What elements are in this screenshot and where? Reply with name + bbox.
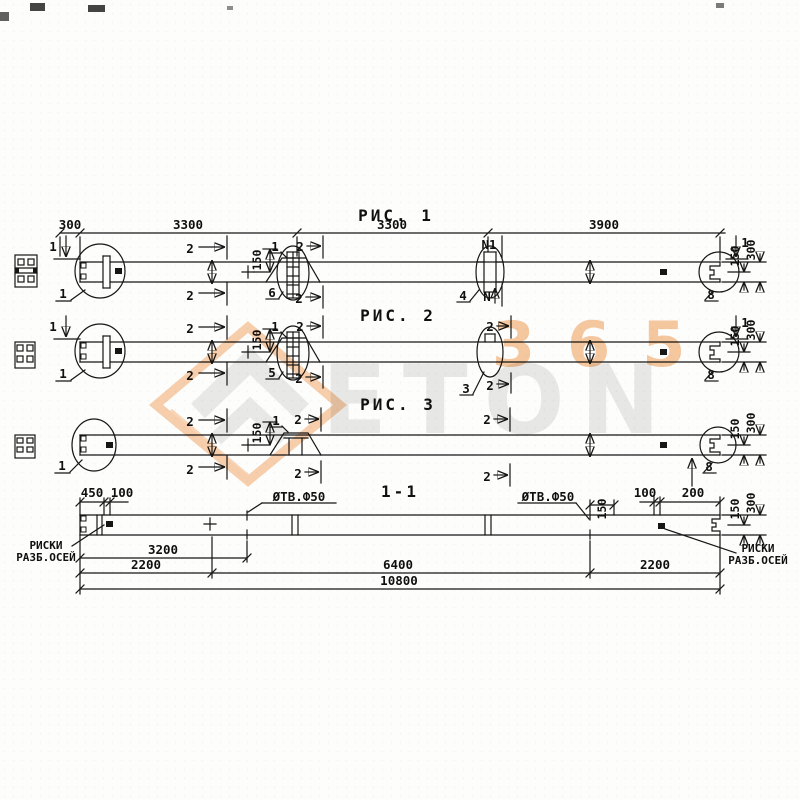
console-pos-label: 1 bbox=[271, 319, 279, 334]
console-pos-label: 1 bbox=[272, 413, 280, 428]
section-top-left-dims: 450 100 bbox=[76, 485, 133, 515]
section-icon-3 bbox=[15, 435, 35, 458]
dim-2200-right: 2200 bbox=[640, 557, 670, 572]
beam-end-notch bbox=[710, 262, 720, 282]
section-right-dims: 150 300 bbox=[722, 493, 766, 543]
fig1-right-end-detail: 8 150 300 bbox=[699, 240, 766, 302]
section2-mark-label: 2 bbox=[186, 368, 194, 383]
sectionN1-mark-label: N1 bbox=[481, 237, 496, 252]
fig1-dim-150: 150 1 bbox=[242, 239, 287, 278]
hole-label: ØТВ.Ф50 bbox=[272, 489, 326, 504]
dim-150: 150 bbox=[250, 330, 264, 351]
section2-mark-label: 2 bbox=[486, 378, 494, 393]
dim-150: 150 bbox=[250, 423, 264, 444]
dim-3200: 3200 bbox=[148, 542, 178, 557]
section-top-right-dims: 100 200 bbox=[634, 485, 724, 515]
section2-mark-label: 2 bbox=[483, 412, 491, 427]
section-bottom-dims: 3200 2200 6400 2200 10800 bbox=[76, 535, 724, 594]
fig2-dim-150: 150 1 bbox=[242, 319, 287, 358]
section2-mark-label: 2 bbox=[186, 321, 194, 336]
dim-150-right: 150 bbox=[728, 246, 742, 267]
dim-300-right: 300 bbox=[744, 320, 758, 341]
dim-3300-b: 3300 bbox=[377, 217, 407, 232]
fig3-section2-marks: 2 2 2 2 2 2 bbox=[186, 408, 510, 486]
section2-mark-label: 2 bbox=[483, 469, 491, 484]
section2-mark-label: 2 bbox=[186, 288, 194, 303]
detail-8-label: 8 bbox=[707, 367, 715, 382]
fig1-beam bbox=[80, 256, 720, 288]
dim-150-right: 150 bbox=[728, 419, 742, 440]
fig3-dim-150: 150 1 bbox=[242, 413, 288, 451]
dim-200: 200 bbox=[682, 485, 705, 500]
fig3-beam bbox=[80, 434, 720, 486]
detail-6-label: 6 bbox=[268, 285, 276, 300]
section2-mark-label: 2 bbox=[294, 412, 302, 427]
fig1-top-dimensions: 300 3300 3300 3900 bbox=[56, 217, 725, 260]
risk-label-right-2: РАЗБ.ОСЕЙ bbox=[728, 554, 788, 567]
dim-3300-a: 3300 bbox=[173, 217, 203, 232]
section2-mark-label: 2 bbox=[186, 462, 194, 477]
beam-end-notch bbox=[710, 342, 720, 362]
detail-8-label: 8 bbox=[707, 287, 715, 302]
section-1-1: 1-1 450 100 ØТВ.Ф50 ØТВ.Ф bbox=[16, 482, 788, 594]
scanned-drawing-page: РИС. 1 300 3300 3300 3900 1 1 2 2 bbox=[0, 0, 800, 800]
fig2-title: РИС. 2 bbox=[360, 306, 436, 325]
fig2-right-end-detail: 8 150 300 bbox=[699, 320, 766, 382]
dim-300-right: 300 bbox=[744, 240, 758, 261]
fig2: РИС. 2 1 1 2 2 2 2 2 2 bbox=[49, 306, 766, 396]
section-beam bbox=[80, 511, 720, 539]
fig2-console-detail: 5 bbox=[266, 326, 320, 380]
dim-2200-left: 2200 bbox=[131, 557, 161, 572]
detail-1-label: 1 bbox=[59, 366, 67, 381]
dim-100-right: 100 bbox=[634, 485, 657, 500]
section-hole-left: ØТВ.Ф50 bbox=[248, 489, 336, 512]
fig2-beam bbox=[80, 336, 720, 368]
dim-3900: 3900 bbox=[589, 217, 619, 232]
dim-450: 450 bbox=[81, 485, 104, 500]
scan-artifacts bbox=[0, 3, 724, 21]
dim-100-left: 100 bbox=[111, 485, 134, 500]
section2-mark-label: 2 bbox=[186, 414, 194, 429]
fig1: РИС. 1 300 3300 3300 3900 1 1 2 2 bbox=[49, 206, 766, 308]
risk-label-left-2: РАЗБ.ОСЕЙ bbox=[16, 551, 76, 564]
dim-150-hole: 150 bbox=[595, 499, 609, 520]
detail-1-label: 1 bbox=[59, 286, 67, 301]
detail-5-label: 5 bbox=[268, 365, 276, 380]
dim-300-right: 300 bbox=[744, 493, 758, 514]
fig3: РИС. 3 2 2 2 2 2 2 1 bbox=[55, 395, 766, 486]
section-icon-2 bbox=[15, 342, 35, 368]
fig1-console-detail: 6 bbox=[266, 246, 320, 300]
beam-end-notch bbox=[712, 515, 720, 535]
dim-6400: 6400 bbox=[383, 557, 413, 572]
dim-10800: 10800 bbox=[380, 573, 418, 588]
dim-150-right: 150 bbox=[728, 499, 742, 520]
section2-mark-label: 2 bbox=[294, 466, 302, 481]
console-pos-label: 1 bbox=[271, 239, 279, 254]
fig3-title: РИС. 3 bbox=[360, 395, 436, 414]
section2-mark-label: 2 bbox=[186, 241, 194, 256]
dim-150: 150 bbox=[250, 250, 264, 271]
section1-mark-label: 1 bbox=[49, 239, 57, 254]
section-title: 1-1 bbox=[381, 482, 419, 501]
section-icon-1 bbox=[15, 255, 37, 287]
fig1-joint-detail: N1 N 4 bbox=[457, 236, 504, 306]
dim-300-right: 300 bbox=[744, 413, 758, 434]
hole-label: ØТВ.Ф50 bbox=[521, 489, 575, 504]
fig3-console-detail bbox=[270, 433, 321, 455]
section1-mark-label: 1 bbox=[49, 319, 57, 334]
beam-end-notch bbox=[710, 435, 720, 455]
detail-3-label: 3 bbox=[462, 381, 470, 396]
dim-150-right: 150 bbox=[728, 326, 742, 347]
fig1-section1-marks: 1 1 bbox=[49, 235, 749, 259]
technical-drawing: РИС. 1 300 3300 3300 3900 1 1 2 2 bbox=[0, 0, 800, 800]
dim-300: 300 bbox=[59, 217, 82, 232]
detail-4-label: 4 bbox=[459, 288, 467, 303]
detail-1-label: 1 bbox=[58, 458, 66, 473]
